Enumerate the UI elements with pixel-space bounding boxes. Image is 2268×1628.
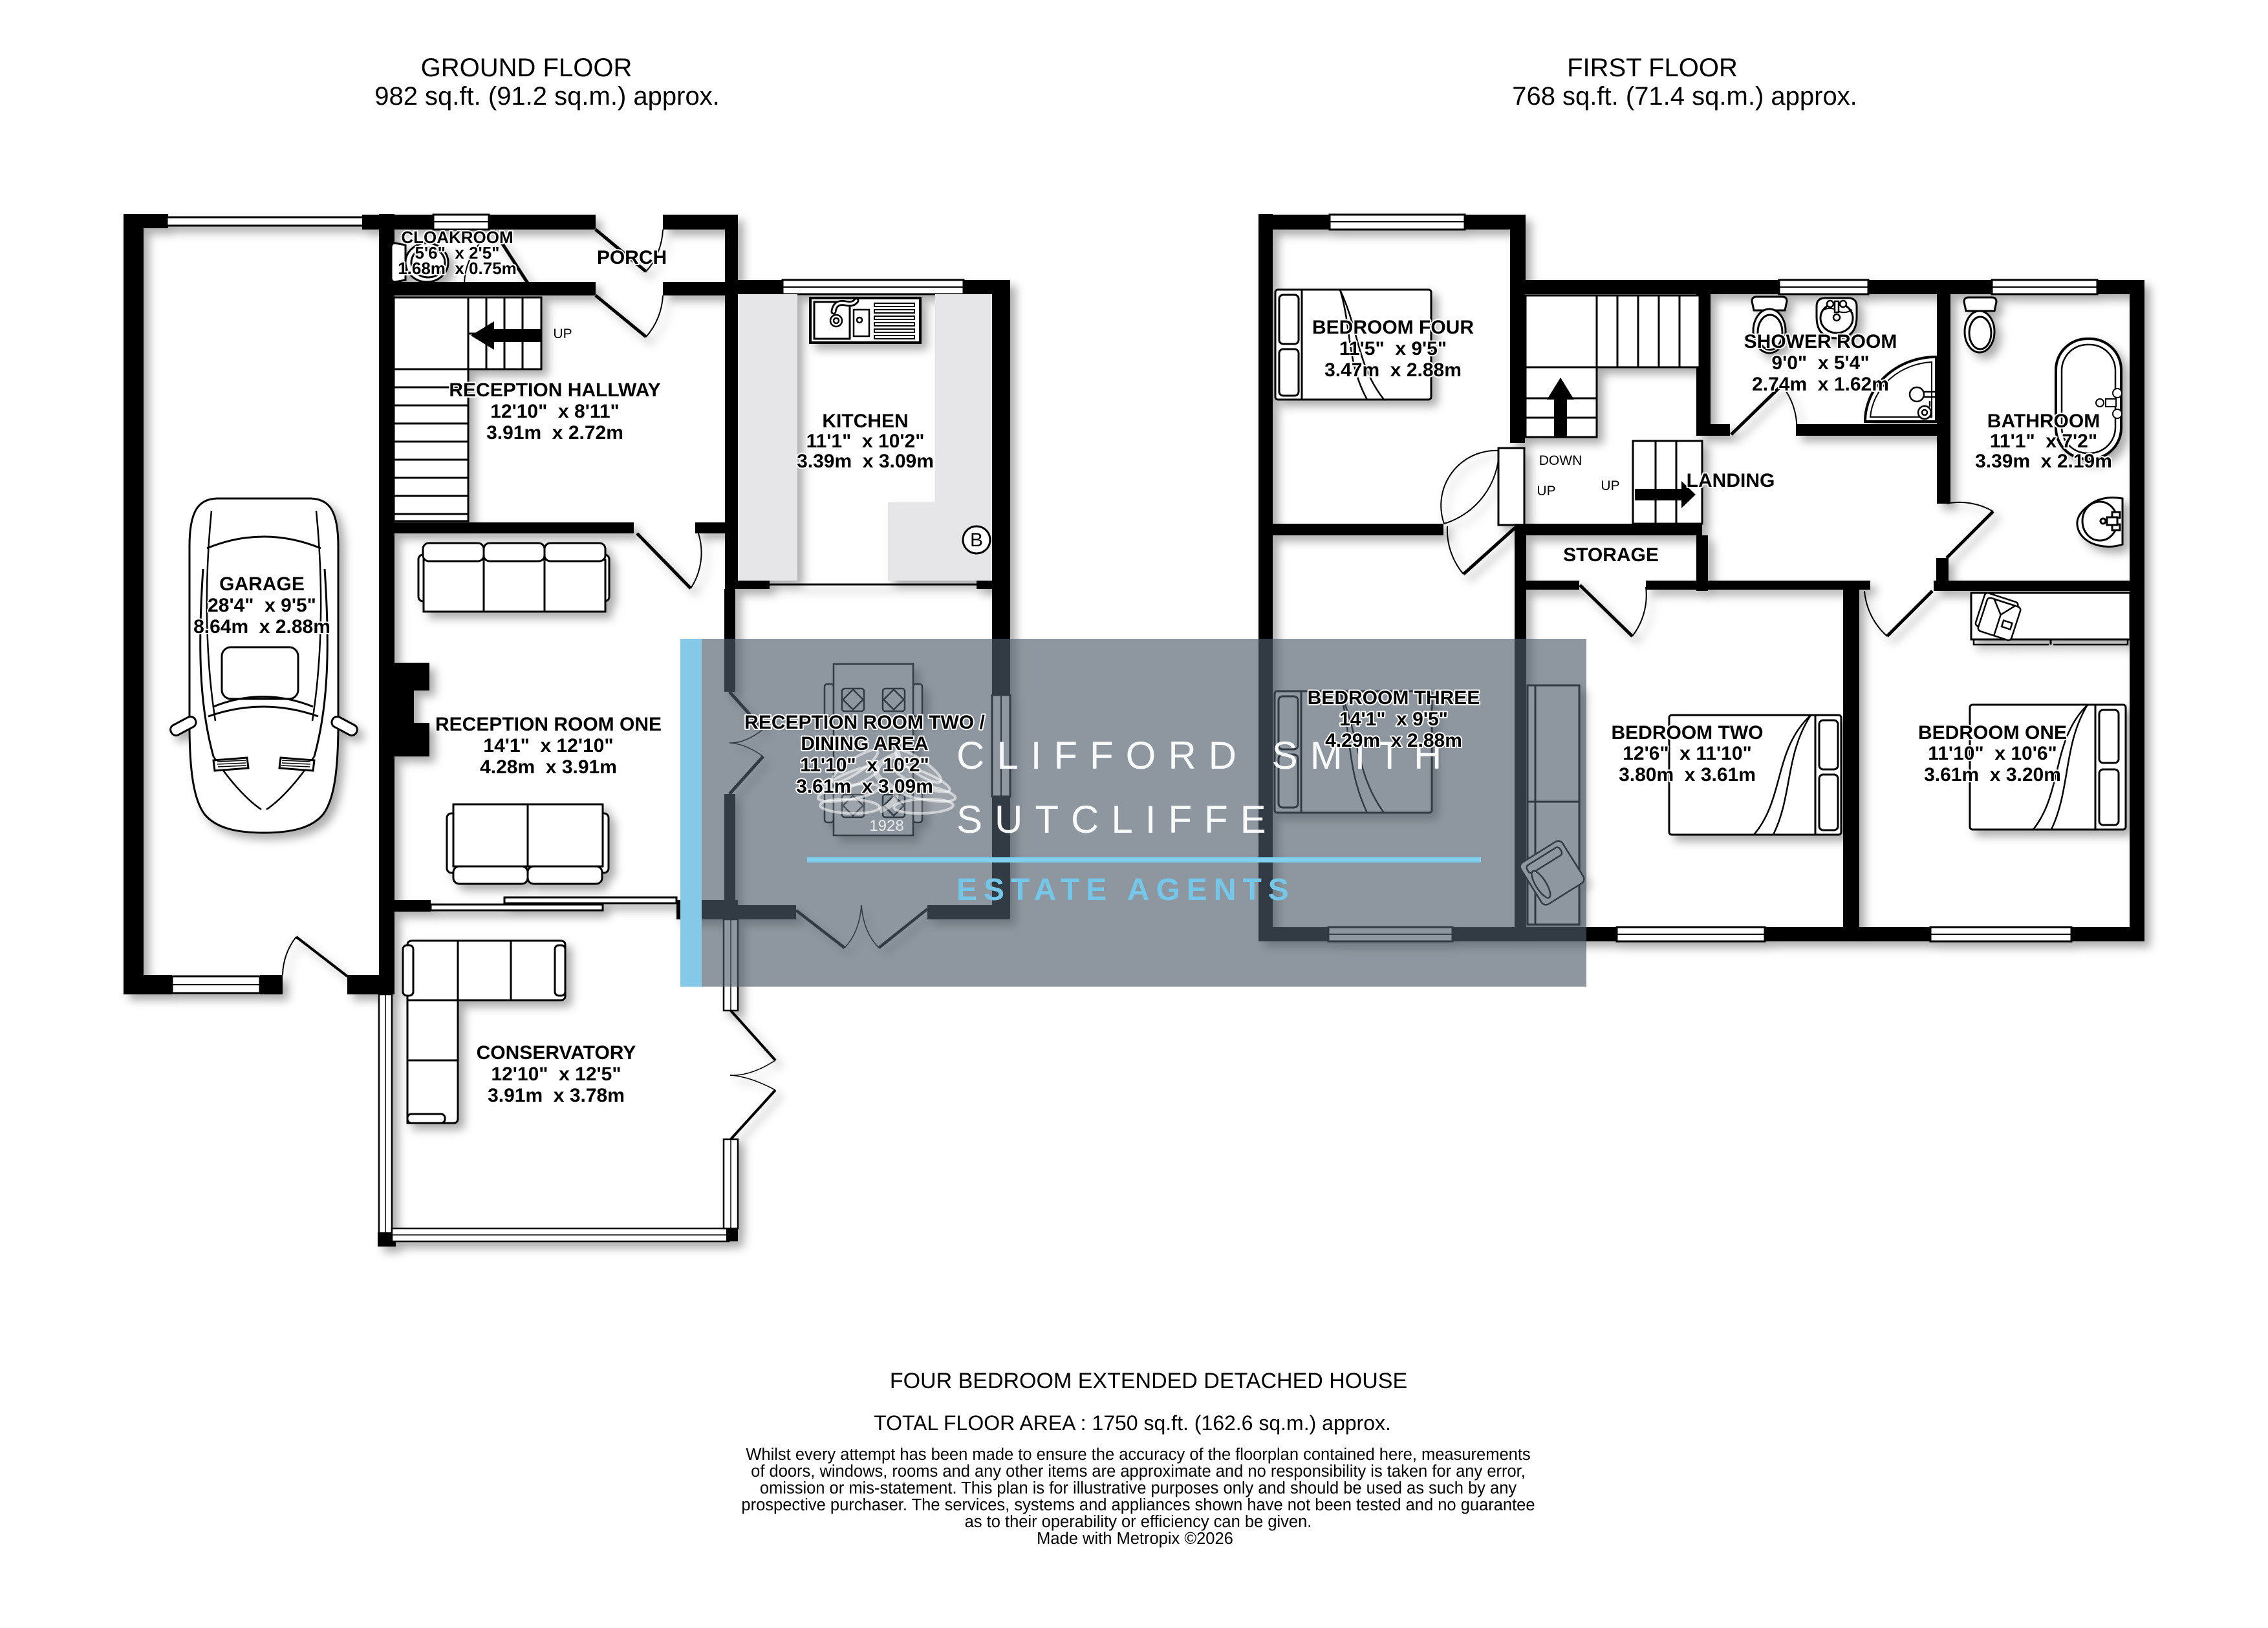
svg-text:8.64m x 2.88m: 8.64m x 2.88m — [193, 616, 330, 637]
svg-text:11'5" x 9'5": 11'5" x 9'5" — [1339, 338, 1447, 359]
svg-text:FOUR BEDROOM EXTENDED DETACHED: FOUR BEDROOM EXTENDED DETACHED HOUSE — [890, 1369, 1407, 1393]
svg-text:2.74m x 1.62m: 2.74m x 1.62m — [1752, 374, 1889, 395]
svg-text:TOTAL FLOOR AREA : 1750 sq.ft.: TOTAL FLOOR AREA : 1750 sq.ft. (162.6 sq… — [874, 1411, 1391, 1435]
svg-text:4.29m x 2.88m: 4.29m x 2.88m — [1325, 730, 1462, 751]
svg-text:11'1" x 10'2": 11'1" x 10'2" — [806, 431, 925, 452]
svg-text:14'1" x 12'10": 14'1" x 12'10" — [483, 735, 613, 756]
svg-text:12'6" x 11'10": 12'6" x 11'10" — [1623, 743, 1752, 764]
svg-text:FIRST FLOOR: FIRST FLOOR — [1567, 54, 1738, 82]
svg-text:DOWN: DOWN — [1539, 453, 1582, 468]
svg-text:12'10" x 8'11": 12'10" x 8'11" — [490, 401, 620, 422]
svg-text:SUTCLIFFE: SUTCLIFFE — [956, 798, 1279, 841]
svg-text:UP: UP — [1601, 478, 1619, 493]
svg-text:11'10" x 10'6": 11'10" x 10'6" — [1928, 743, 2057, 764]
svg-text:STORAGE: STORAGE — [1563, 544, 1659, 566]
svg-text:14'1" x 9'5": 14'1" x 9'5" — [1339, 709, 1448, 730]
svg-text:ESTATE AGENTS: ESTATE AGENTS — [956, 873, 1295, 907]
svg-text:UP: UP — [1537, 484, 1555, 498]
svg-text:4.28m x 3.91m: 4.28m x 3.91m — [480, 756, 617, 778]
svg-text:BEDROOM THREE: BEDROOM THREE — [1308, 687, 1480, 709]
svg-text:RECEPTION HALLWAY: RECEPTION HALLWAY — [449, 380, 660, 401]
svg-text:9'0" x 5'4": 9'0" x 5'4" — [1771, 352, 1869, 374]
svg-text:Made with Metropix ©2026: Made with Metropix ©2026 — [1037, 1530, 1233, 1548]
svg-text:prospective purchaser. The ser: prospective purchaser. The services, sys… — [741, 1496, 1535, 1514]
svg-text:3.47m x 2.88m: 3.47m x 2.88m — [1324, 359, 1462, 381]
svg-text:982 sq.ft. (91.2 sq.m.) approx: 982 sq.ft. (91.2 sq.m.) approx. — [374, 82, 720, 111]
svg-text:Whilst every attempt has been: Whilst every attempt has been made to en… — [746, 1446, 1530, 1464]
svg-text:BATHROOM: BATHROOM — [1987, 411, 2100, 432]
svg-text:3.39m x 2.19m: 3.39m x 2.19m — [1975, 451, 2112, 472]
svg-text:of doors, windows, rooms and a: of doors, windows, rooms and any other i… — [751, 1462, 1526, 1481]
svg-text:3.91m x 3.78m: 3.91m x 3.78m — [488, 1085, 625, 1106]
svg-text:RECEPTION ROOM ONE: RECEPTION ROOM ONE — [435, 714, 662, 735]
svg-text:as to their operability or eff: as to their operability or efficiency ca… — [965, 1513, 1312, 1531]
svg-text:omission or mis-statement. Thi: omission or mis-statement. This plan is … — [760, 1479, 1517, 1497]
svg-text:3.80m x 3.61m: 3.80m x 3.61m — [1619, 764, 1756, 786]
svg-text:1928: 1928 — [869, 817, 903, 835]
svg-text:11'1" x 7'2": 11'1" x 7'2" — [1990, 431, 2097, 452]
svg-text:BEDROOM ONE: BEDROOM ONE — [1918, 722, 2067, 744]
svg-text:RECEPTION ROOM TWO /: RECEPTION ROOM TWO / — [744, 712, 985, 733]
svg-text:CONSERVATORY: CONSERVATORY — [477, 1042, 636, 1064]
svg-text:KITCHEN: KITCHEN — [822, 411, 908, 432]
svg-text:DINING AREA: DINING AREA — [801, 733, 928, 755]
svg-text:UP: UP — [553, 327, 572, 341]
svg-text:SHOWER ROOM: SHOWER ROOM — [1744, 331, 1897, 352]
svg-text:LANDING: LANDING — [1687, 470, 1775, 491]
svg-text:12'10" x 12'5": 12'10" x 12'5" — [491, 1064, 621, 1085]
svg-text:768 sq.ft. (71.4 sq.m.) approx: 768 sq.ft. (71.4 sq.m.) approx. — [1512, 82, 1857, 111]
svg-text:3.91m x 2.72m: 3.91m x 2.72m — [486, 422, 623, 444]
svg-text:GROUND FLOOR: GROUND FLOOR — [421, 54, 632, 82]
svg-text:B: B — [970, 530, 983, 551]
svg-text:3.61m x 3.20m: 3.61m x 3.20m — [1924, 764, 2061, 786]
svg-text:BEDROOM TWO: BEDROOM TWO — [1612, 722, 1764, 744]
svg-text:1.68m x 0.75m: 1.68m x 0.75m — [398, 259, 517, 278]
svg-text:BEDROOM FOUR: BEDROOM FOUR — [1312, 317, 1474, 338]
svg-text:28'4" x 9'5": 28'4" x 9'5" — [208, 595, 316, 616]
svg-text:3.61m x 3.09m: 3.61m x 3.09m — [796, 776, 933, 797]
svg-text:GARAGE: GARAGE — [219, 573, 305, 595]
svg-text:PORCH: PORCH — [597, 247, 667, 268]
svg-text:3.39m x 3.09m: 3.39m x 3.09m — [797, 451, 934, 472]
svg-text:11'10" x 10'2": 11'10" x 10'2" — [800, 755, 929, 776]
